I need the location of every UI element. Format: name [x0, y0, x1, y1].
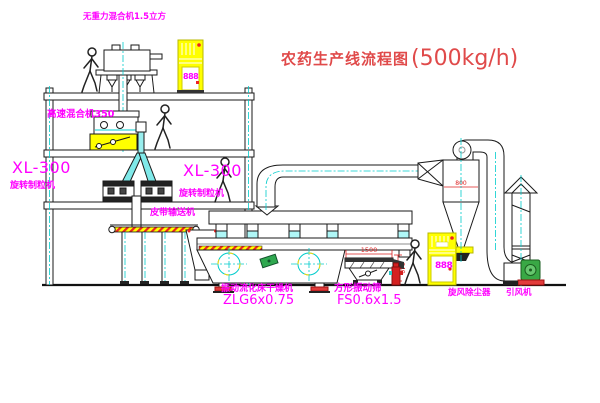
- label-dryer-model: ZLG6x0.75: [223, 294, 294, 307]
- outlet-flange: [453, 141, 471, 159]
- label-high-speed-mixer: 高速混合机350: [47, 110, 114, 120]
- label-granulator-right: 旋转制粒机: [179, 190, 224, 199]
- granulator-right: [141, 181, 172, 202]
- cyclone-inlet: [418, 160, 443, 186]
- diagram-title: 农药生产线流程图(500kg/h): [281, 46, 518, 71]
- label-xl300-left: XL-300: [12, 160, 71, 176]
- granulator-discharge-duct: [132, 196, 141, 227]
- label-sieve-model: FS0.6x1.5: [337, 294, 402, 307]
- label-cyclone: 旋风除尘器: [448, 289, 491, 298]
- induced-draft-fan: [503, 260, 544, 285]
- title-capacity: (500kg/h): [411, 46, 518, 71]
- title-text: 农药生产线流程图: [281, 50, 409, 68]
- label-fan: 引风机: [506, 289, 532, 298]
- control-cabinet-1: [177, 40, 204, 93]
- label-xl300-right: XL-300: [183, 163, 242, 179]
- dim-sieve-width: 1500: [361, 246, 378, 254]
- control-cabinet-2: [428, 233, 456, 285]
- flow-diagram-canvas: 800 1500 340: [0, 0, 600, 403]
- label-granulator-left: 旋转制粒机: [10, 182, 55, 191]
- granulator-left: [103, 181, 134, 202]
- cabinet-2-display: 888: [435, 262, 452, 271]
- label-gravity-mixer: 无重力混合机1.5立方: [83, 13, 166, 22]
- belt-conveyor: [109, 225, 199, 284]
- cabinet-1-display: 888: [183, 73, 198, 81]
- person-figure: [155, 105, 171, 149]
- label-belt-conveyor: 皮带输送机: [150, 209, 195, 218]
